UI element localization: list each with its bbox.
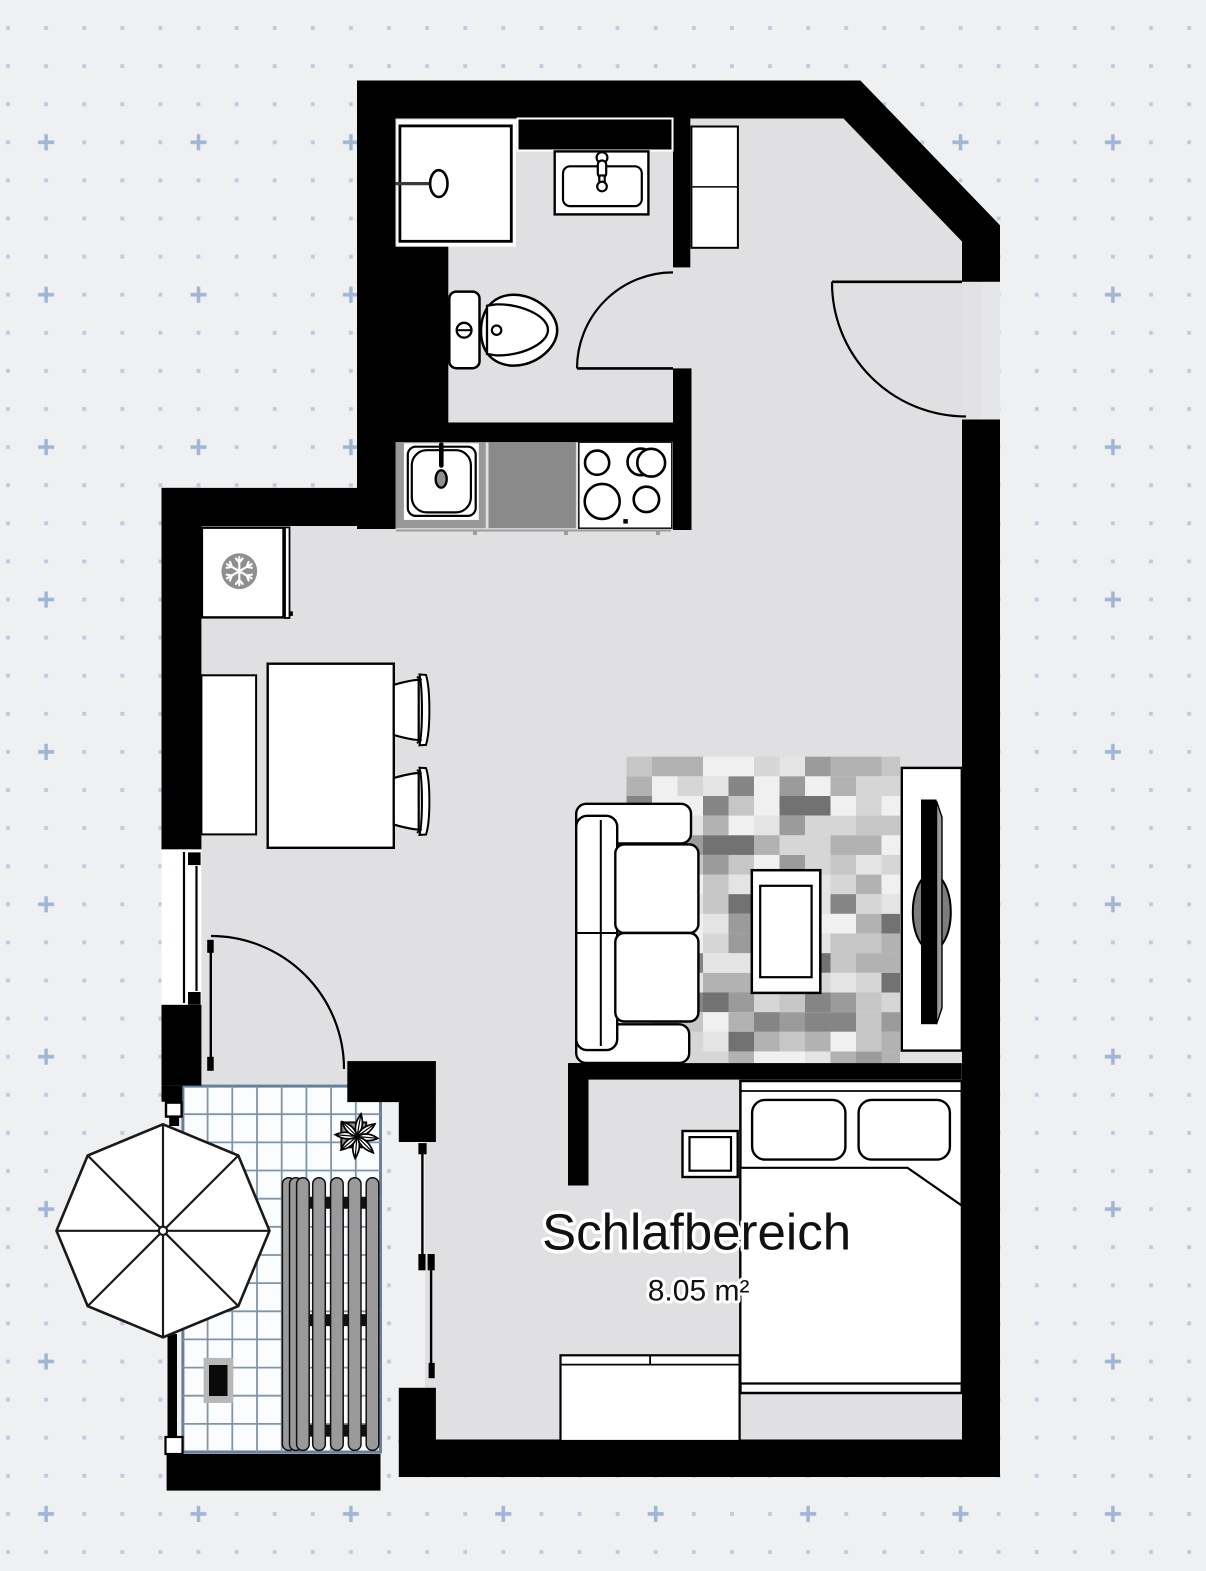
svg-text:8.05 m²: 8.05 m² bbox=[648, 1274, 750, 1307]
svg-text:Schlafbereich: Schlafbereich bbox=[542, 1204, 851, 1261]
